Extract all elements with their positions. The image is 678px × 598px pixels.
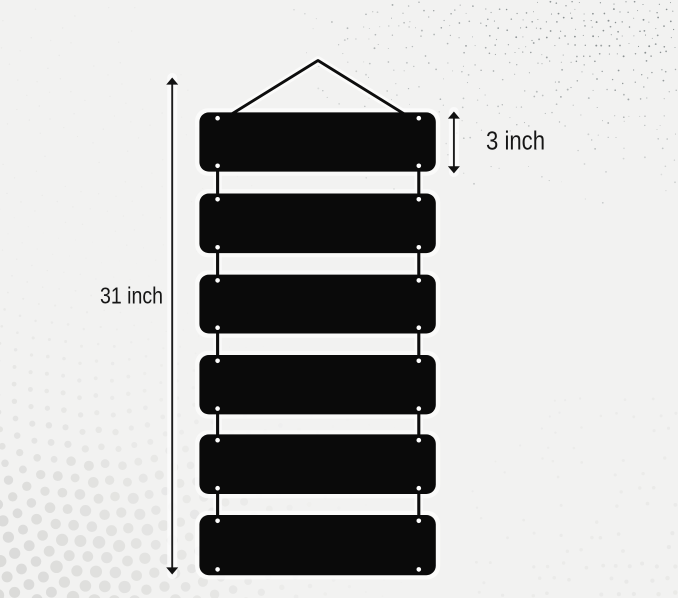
svg-text:31 inch: 31 inch [100,283,163,309]
svg-text:3 inch: 3 inch [486,128,545,156]
